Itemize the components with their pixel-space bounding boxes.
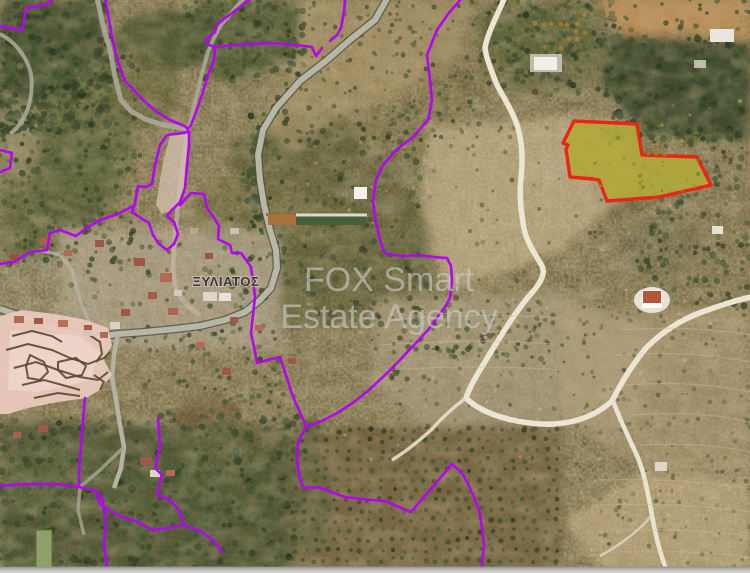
svg-text:FOX Smart: FOX Smart: [304, 261, 475, 299]
svg-text:ΞΥΛΙΑΤΟΣ: ΞΥΛΙΑΤΟΣ: [193, 274, 260, 289]
svg-text:Estate Agency: Estate Agency: [280, 298, 497, 336]
